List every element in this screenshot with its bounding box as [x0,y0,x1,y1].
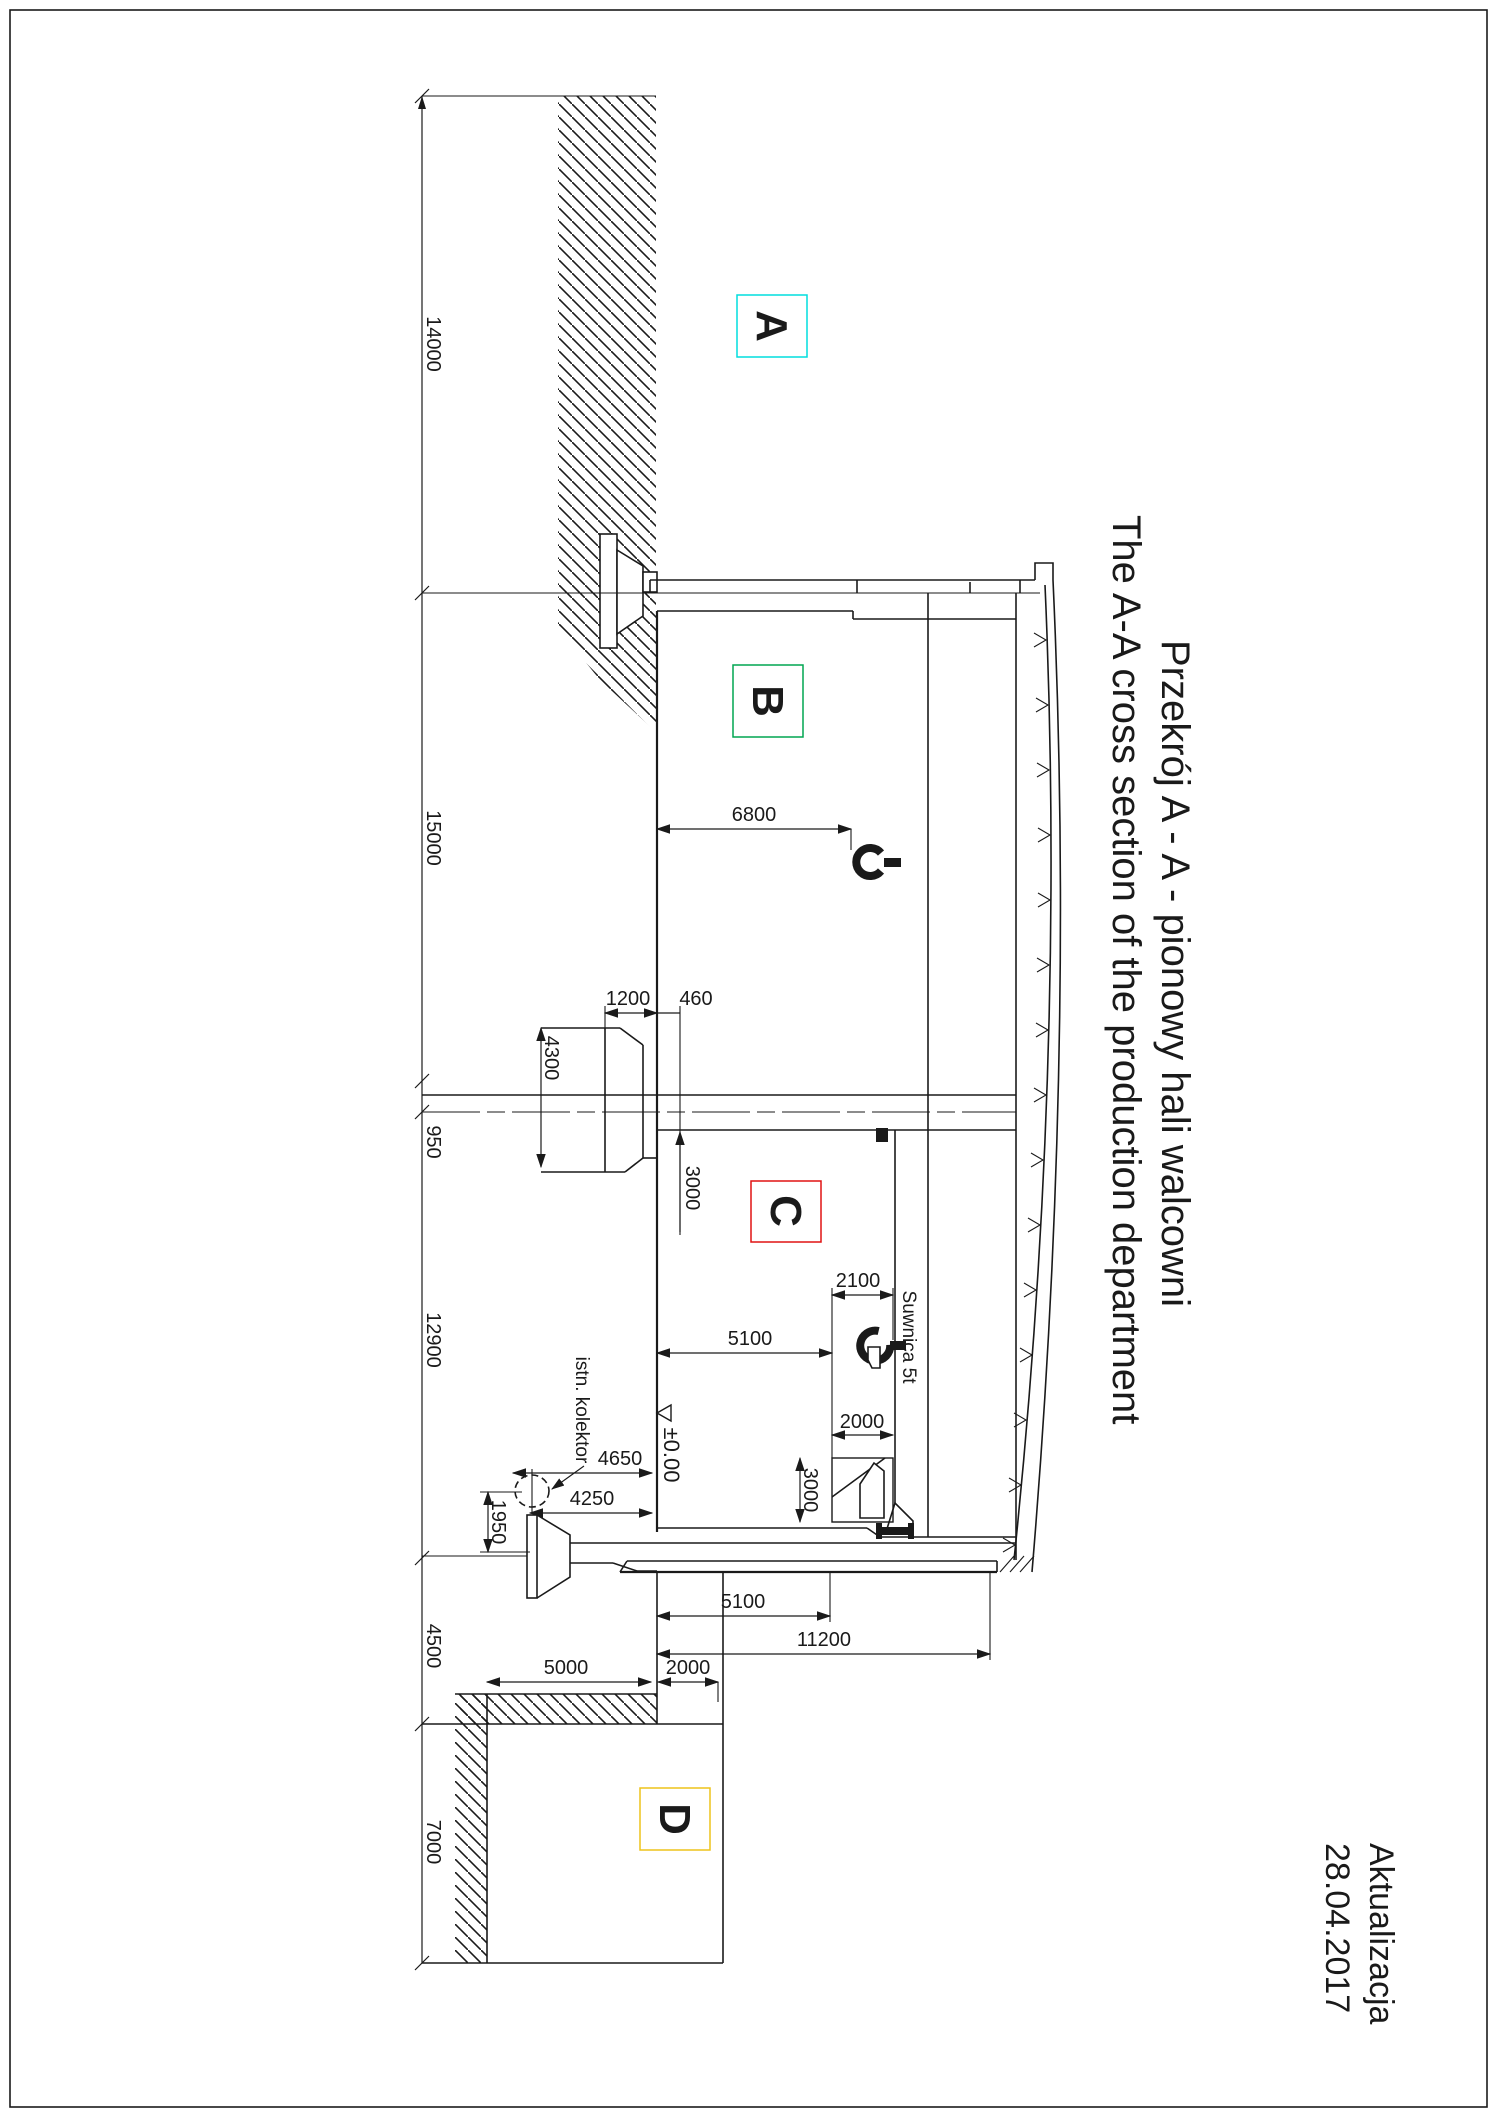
floor-rail [878,1527,912,1535]
dim-col-offset: 460 [679,988,712,1010]
zone-c-label: C [761,1195,810,1227]
building-structure [422,96,1053,1963]
dim-12900: 12900 [422,1312,444,1368]
dim-annex-width: 5000 [544,1657,589,1679]
dim-equip-width: 2000 [840,1411,885,1433]
zone-d-label: D [650,1803,699,1835]
dim-collector-depth: 1950 [487,1500,509,1545]
dim-14000: 14000 [422,316,444,372]
dim-crane-span: 5100 [728,1328,773,1350]
dim-15000: 15000 [422,810,444,866]
technical-drawing-canvas: 6800 1200 460 2100 5100 2000 4650 4250 5… [0,0,1497,2117]
equipment-detail [832,1458,893,1522]
parapet-cap [1035,563,1053,580]
zone-b-label: B [743,685,792,717]
dim-beam-drop: 3000 [681,1166,703,1211]
zone-markers: A B C D [640,295,821,1850]
collector-label: istn. kolektor [571,1357,592,1464]
dim-floor-span: 5100 [721,1591,766,1613]
crane-hook-upper [856,848,901,876]
dim-equip-height: 3000 [799,1468,821,1513]
zone-a-label: A [747,310,796,342]
dim-4500: 4500 [422,1624,444,1669]
titles: Przekrój A - A - pionowy hali walcowni T… [1104,515,1400,2025]
title-polish: Przekrój A - A - pionowy hali walcowni [1153,640,1197,1307]
drawing-sheet: 6800 1200 460 2100 5100 2000 4650 4250 5… [0,0,1497,2117]
ground-hatch-annex [455,1694,657,1963]
dim-crane-width: 2100 [836,1270,881,1292]
level-label: ±0.00 [659,1428,684,1483]
dim-footing-dist: 4250 [570,1488,615,1510]
level-mark [657,1405,671,1421]
dim-950: 950 [422,1125,444,1158]
crane-rail-section [876,1128,888,1142]
dim-col-width: 1200 [606,988,651,1010]
crane-label: Suwnica 5t [898,1291,919,1385]
dim-7000: 7000 [422,1820,444,1865]
update-label: Aktualizacja [1362,1843,1400,2025]
update-date: 28.04.2017 [1318,1843,1356,2013]
title-english: The A-A cross section of the production … [1104,515,1148,1424]
dim-collector-dist: 4650 [598,1448,643,1470]
dim-passage-width: 2000 [666,1657,711,1679]
dimension-labels: 6800 1200 460 2100 5100 2000 4650 4250 5… [544,804,885,1679]
dim-col-height: 4300 [540,1036,562,1081]
curved-roof-wall [1003,580,1060,1572]
dim-hall-b-span: 6800 [732,804,777,826]
dim-total-span: 11200 [797,1629,851,1651]
